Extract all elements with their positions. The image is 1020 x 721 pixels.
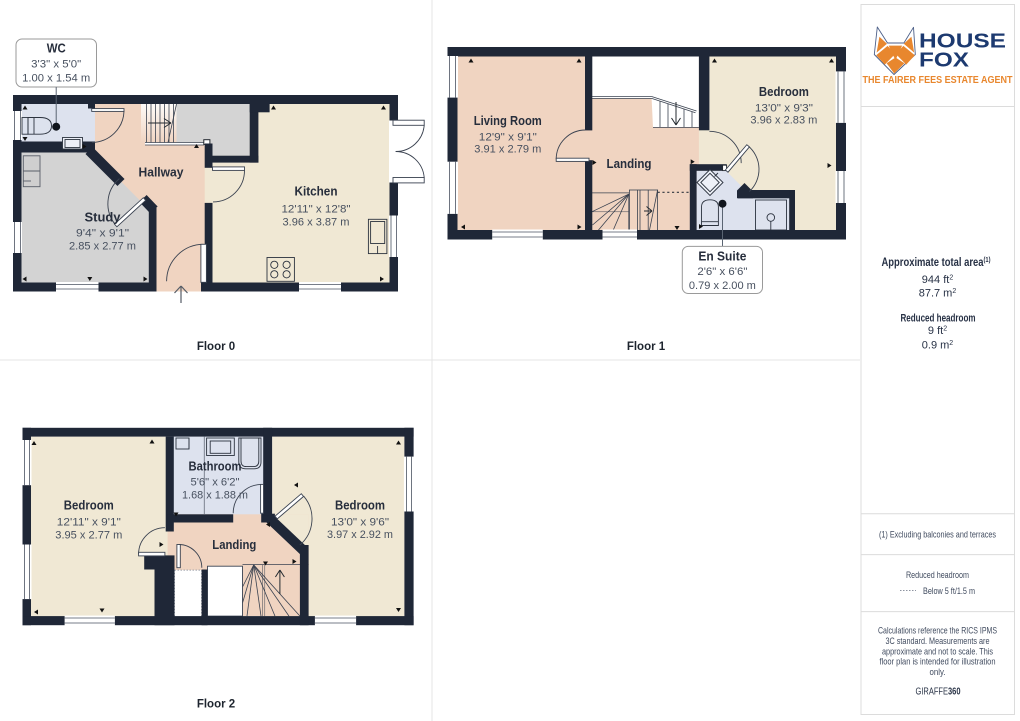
svg-text:(1) Excluding balconies and te: (1) Excluding balconies and terraces (879, 530, 996, 541)
svg-text:Bathroom: Bathroom (189, 460, 242, 474)
svg-text:12'11" x 12'8": 12'11" x 12'8" (282, 204, 351, 216)
svg-text:Reduced headroom: Reduced headroom (906, 570, 969, 581)
svg-text:approximate and not to scale.: approximate and not to scale. This (882, 646, 993, 657)
svg-text:1.00 x 1.54 m: 1.00 x 1.54 m (22, 73, 90, 85)
svg-text:2.85 x 2.77 m: 2.85 x 2.77 m (69, 241, 136, 253)
svg-text:Below 5 ft/1.5 m: Below 5 ft/1.5 m (923, 586, 975, 597)
svg-text:Study: Study (85, 211, 121, 225)
svg-text:13'0" x 9'3": 13'0" x 9'3" (755, 103, 813, 115)
svg-text:FOX: FOX (919, 49, 969, 72)
svg-text:GIRAFFE360: GIRAFFE360 (916, 686, 961, 698)
svg-text:Reduced headroom: Reduced headroom (901, 313, 976, 325)
svg-text:3.91 x 2.79 m: 3.91 x 2.79 m (474, 144, 541, 156)
svg-text:3.95 x 2.77 m: 3.95 x 2.77 m (55, 530, 122, 542)
svg-text:944 ft2: 944 ft2 (922, 274, 954, 286)
svg-text:Bedroom: Bedroom (759, 85, 809, 99)
svg-text:13'0" x 9'6": 13'0" x 9'6" (331, 517, 389, 529)
svg-text:Landing: Landing (212, 538, 256, 552)
svg-text:0.79 x 2.00 m: 0.79 x 2.00 m (689, 280, 756, 292)
svg-text:floor plan is intended for ill: floor plan is intended for illustration (880, 657, 996, 668)
svg-text:3'3" x 5'0": 3'3" x 5'0" (31, 59, 81, 71)
svg-text:Bedroom: Bedroom (335, 499, 385, 513)
svg-text:9'4" x 9'1": 9'4" x 9'1" (76, 228, 129, 240)
svg-text:2'6" x 6'6": 2'6" x 6'6" (697, 266, 747, 278)
svg-text:5'6" x 6'2": 5'6" x 6'2" (191, 477, 240, 489)
svg-text:Floor 2: Floor 2 (197, 699, 235, 711)
svg-text:Bedroom: Bedroom (64, 499, 114, 513)
svg-text:Landing: Landing (607, 157, 652, 171)
svg-text:Approximate total area(1): Approximate total area(1) (882, 257, 991, 269)
svg-text:87.7 m2: 87.7 m2 (919, 288, 957, 300)
svg-text:only.: only. (930, 667, 946, 678)
svg-text:12'9" x 9'1": 12'9" x 9'1" (479, 132, 537, 144)
svg-text:3C standard. Measurements are: 3C standard. Measurements are (886, 636, 990, 647)
svg-text:0.9 m2: 0.9 m2 (922, 340, 954, 352)
svg-text:Floor 0: Floor 0 (197, 341, 235, 353)
svg-text:Kitchen: Kitchen (295, 185, 338, 199)
svg-text:3.97 x 2.92 m: 3.97 x 2.92 m (327, 529, 393, 541)
svg-text:Floor 1: Floor 1 (627, 341, 666, 353)
svg-text:12'11" x 9'1": 12'11" x 9'1" (57, 517, 121, 529)
svg-text:Hallway: Hallway (139, 166, 184, 180)
svg-text:3.96 x 2.83 m: 3.96 x 2.83 m (750, 115, 817, 127)
svg-text:Calculations reference the RIC: Calculations reference the RICS IPMS (878, 626, 997, 637)
svg-text:En Suite: En Suite (698, 250, 746, 264)
svg-text:Living Room: Living Room (474, 114, 542, 128)
svg-text:WC: WC (47, 41, 67, 56)
svg-text:1.68 x 1.88 m: 1.68 x 1.88 m (182, 490, 248, 502)
svg-text:3.96 x 3.87 m: 3.96 x 3.87 m (283, 217, 350, 229)
svg-text:THE FAIRER FEES ESTATE AGENT: THE FAIRER FEES ESTATE AGENT (863, 75, 1014, 86)
